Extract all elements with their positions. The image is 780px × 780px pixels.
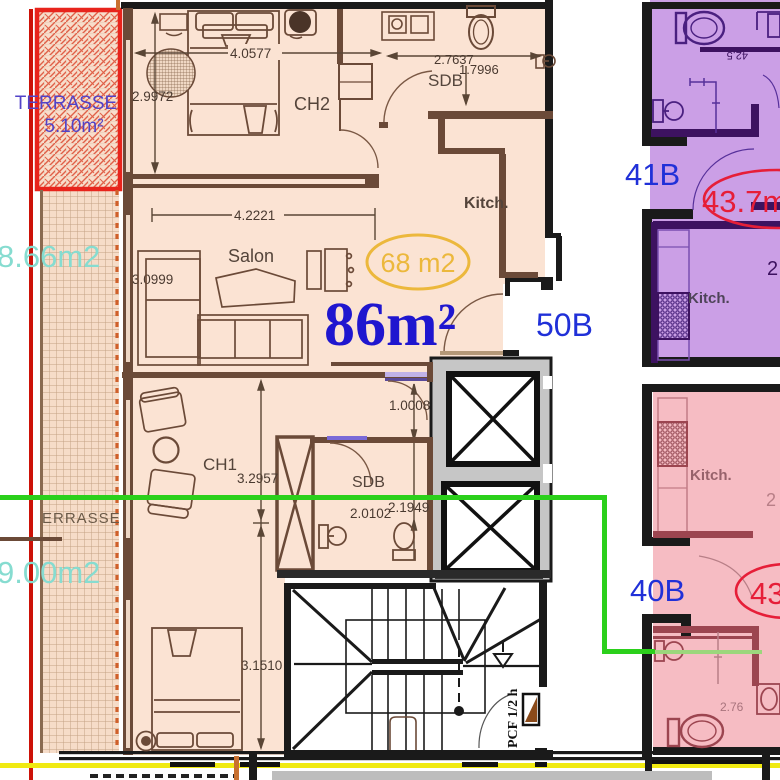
svg-text:PCF 1/2 h: PCF 1/2 h xyxy=(506,688,521,748)
svg-text:43.7m: 43.7m xyxy=(702,184,780,219)
svg-text:4.2221: 4.2221 xyxy=(234,208,275,223)
svg-text:1.7996: 1.7996 xyxy=(459,62,499,77)
svg-text:2.76: 2.76 xyxy=(720,700,744,714)
svg-text:43: 43 xyxy=(750,576,780,611)
svg-text:Salon: Salon xyxy=(228,246,274,266)
svg-text:CH1: CH1 xyxy=(203,455,237,474)
svg-text:2.0102: 2.0102 xyxy=(350,506,391,521)
svg-text:40B: 40B xyxy=(630,573,685,608)
svg-text:Kitch.: Kitch. xyxy=(688,290,730,307)
svg-text:Kitch.: Kitch. xyxy=(464,195,508,212)
svg-text:68 m2: 68 m2 xyxy=(380,248,455,278)
svg-text:3.2957: 3.2957 xyxy=(237,471,278,486)
svg-text:Kitch.: Kitch. xyxy=(690,467,732,484)
svg-text:8.66m2: 8.66m2 xyxy=(0,239,100,274)
svg-text:4.0577: 4.0577 xyxy=(230,46,271,61)
svg-text:SDB: SDB xyxy=(428,71,463,90)
svg-text:86m²: 86m² xyxy=(324,291,456,359)
svg-text:2: 2 xyxy=(767,258,778,280)
svg-text:TERRASSE: TERRASSE xyxy=(15,93,117,114)
svg-text:2.1949: 2.1949 xyxy=(388,500,429,515)
svg-text:2.9972: 2.9972 xyxy=(132,89,173,104)
svg-text:50B: 50B xyxy=(536,307,593,343)
svg-text:3.1510: 3.1510 xyxy=(241,658,282,673)
svg-text:ERRASSE: ERRASSE xyxy=(42,510,121,527)
svg-text:SDB: SDB xyxy=(352,474,385,491)
svg-text:9.00m2: 9.00m2 xyxy=(0,555,100,590)
svg-text:CH2: CH2 xyxy=(294,94,330,114)
svg-text:41B: 41B xyxy=(625,157,680,192)
svg-text:1.0008: 1.0008 xyxy=(389,398,430,413)
svg-text:42.5: 42.5 xyxy=(727,49,748,61)
svg-text:2: 2 xyxy=(766,490,776,510)
svg-text:5.10m²: 5.10m² xyxy=(44,116,103,137)
